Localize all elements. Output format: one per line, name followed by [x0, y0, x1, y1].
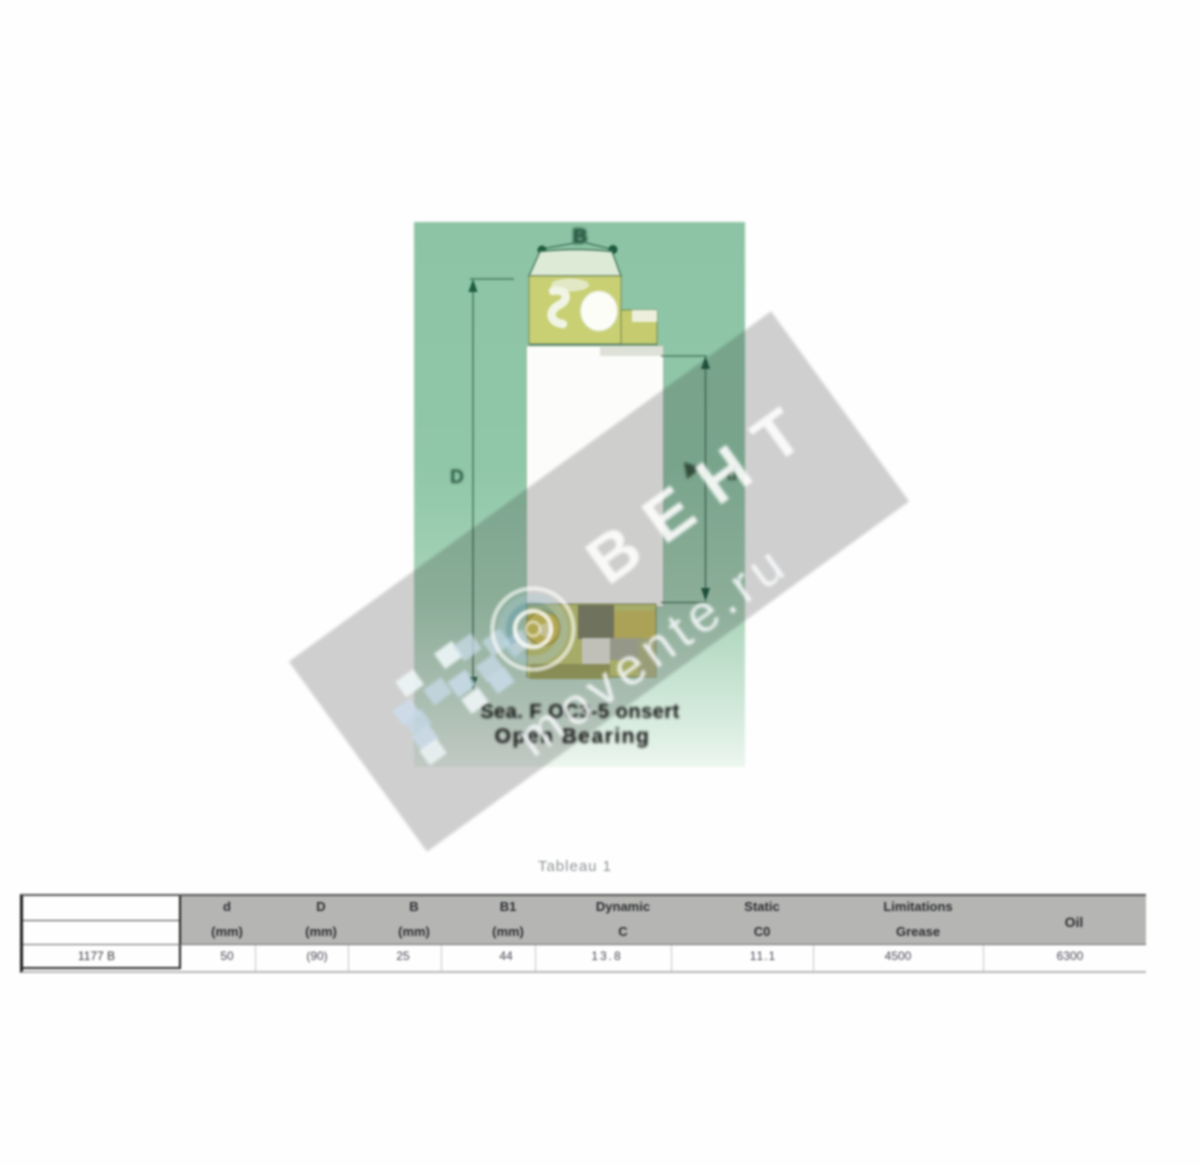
svg-text:B: B	[573, 226, 587, 248]
svg-text:D: D	[450, 467, 464, 488]
